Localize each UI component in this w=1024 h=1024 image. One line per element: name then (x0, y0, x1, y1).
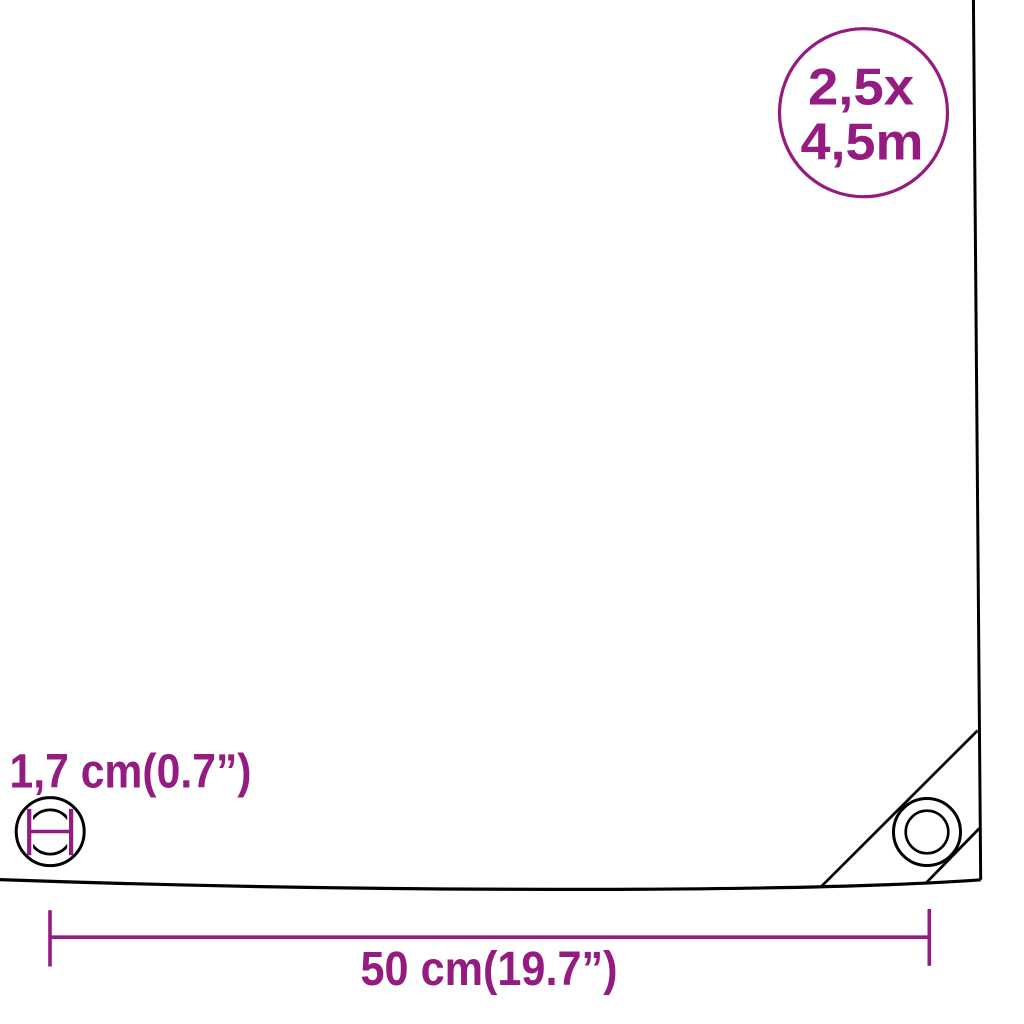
svg-text:50 cm(19.7”): 50 cm(19.7”) (361, 942, 618, 996)
svg-text:4,5m: 4,5m (801, 114, 924, 172)
svg-text:1,7 cm(0.7”): 1,7 cm(0.7”) (10, 745, 252, 799)
svg-text:2,5x: 2,5x (808, 58, 914, 116)
